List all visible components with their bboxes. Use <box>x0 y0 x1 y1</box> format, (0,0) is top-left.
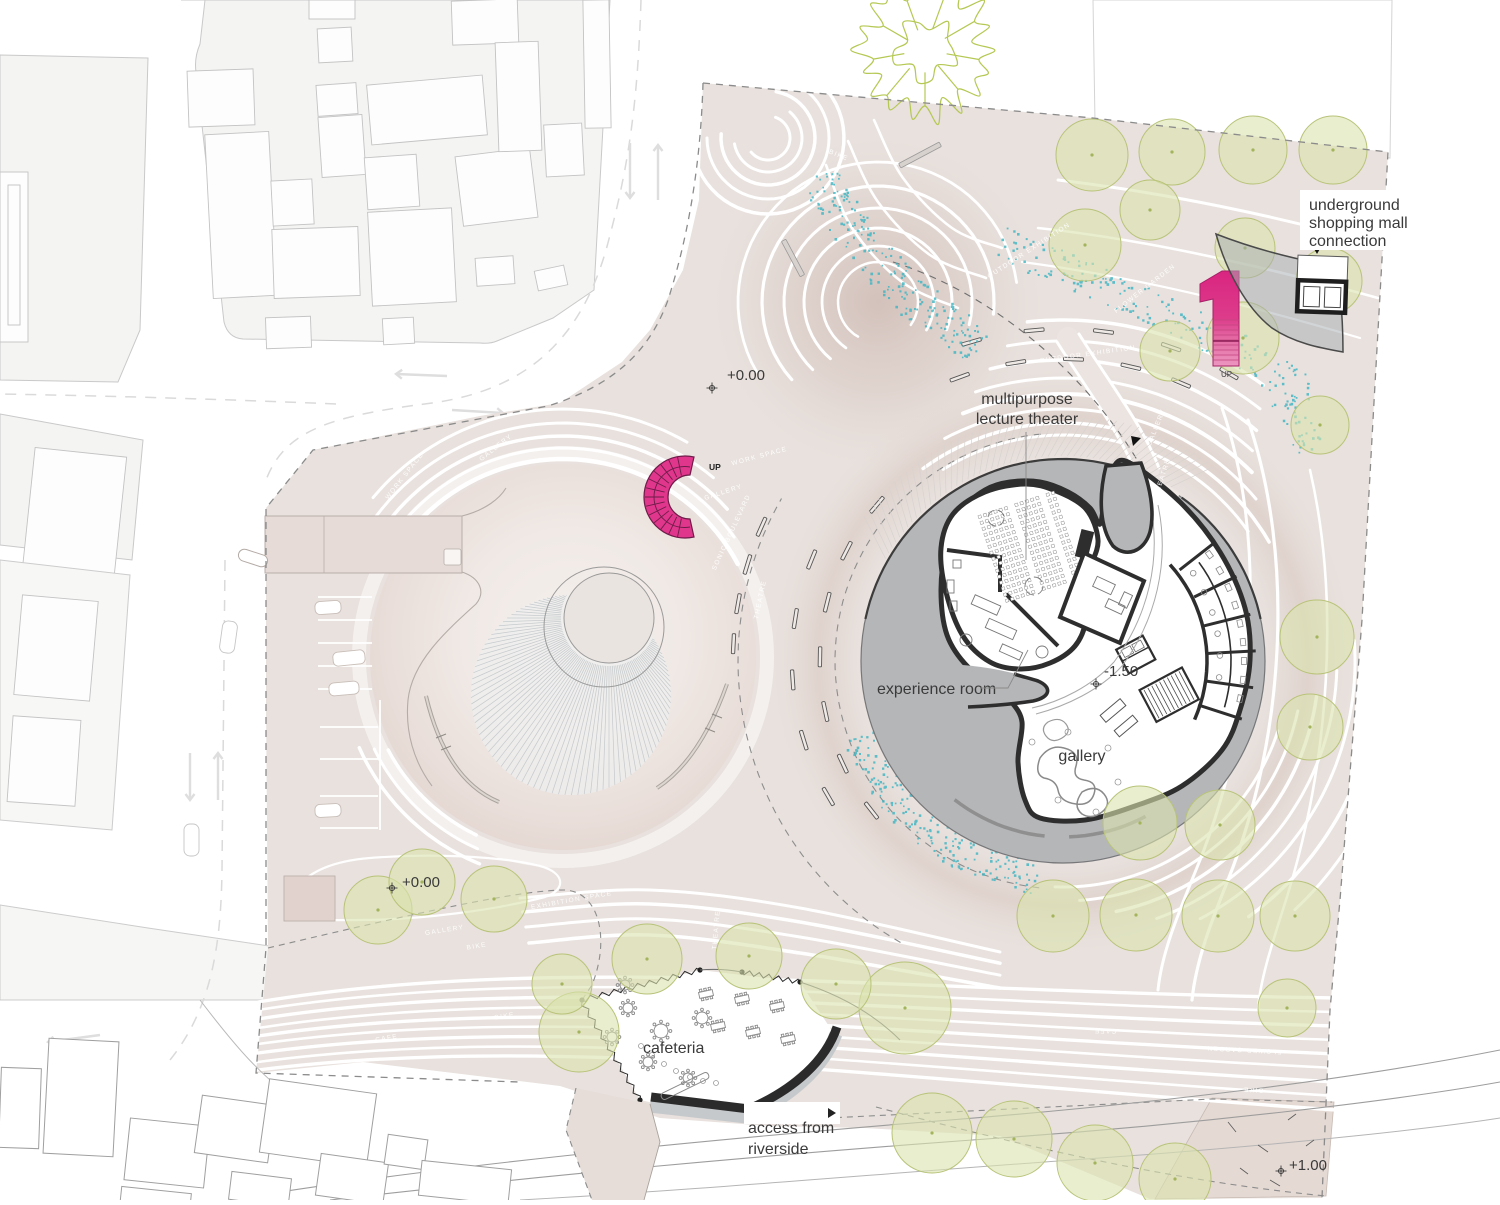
svg-text:underground: underground <box>1309 197 1400 214</box>
svg-text:UP: UP <box>1221 370 1232 379</box>
svg-text:CAFE: CAFE <box>1093 1027 1116 1034</box>
svg-text:lecture theater: lecture theater <box>976 411 1079 428</box>
svg-text:riverside: riverside <box>748 1141 809 1158</box>
svg-text:multipurpose: multipurpose <box>981 391 1073 408</box>
svg-text:shopping mall: shopping mall <box>1309 215 1408 232</box>
svg-text:gallery: gallery <box>1058 748 1105 765</box>
svg-text:-1.50: -1.50 <box>1104 663 1138 680</box>
svg-text:CAFE: CAFE <box>766 1021 789 1029</box>
svg-text:cafeteria: cafeteria <box>643 1040 704 1057</box>
svg-text:experience room: experience room <box>877 681 996 698</box>
svg-text:+0.00: +0.00 <box>727 367 765 384</box>
svg-text:UP: UP <box>709 462 721 472</box>
svg-text:+0.00: +0.00 <box>402 874 440 891</box>
svg-text:connection: connection <box>1309 233 1386 250</box>
svg-text:+1.00: +1.00 <box>1289 1157 1327 1174</box>
svg-text:BIKE: BIKE <box>1243 1085 1264 1093</box>
